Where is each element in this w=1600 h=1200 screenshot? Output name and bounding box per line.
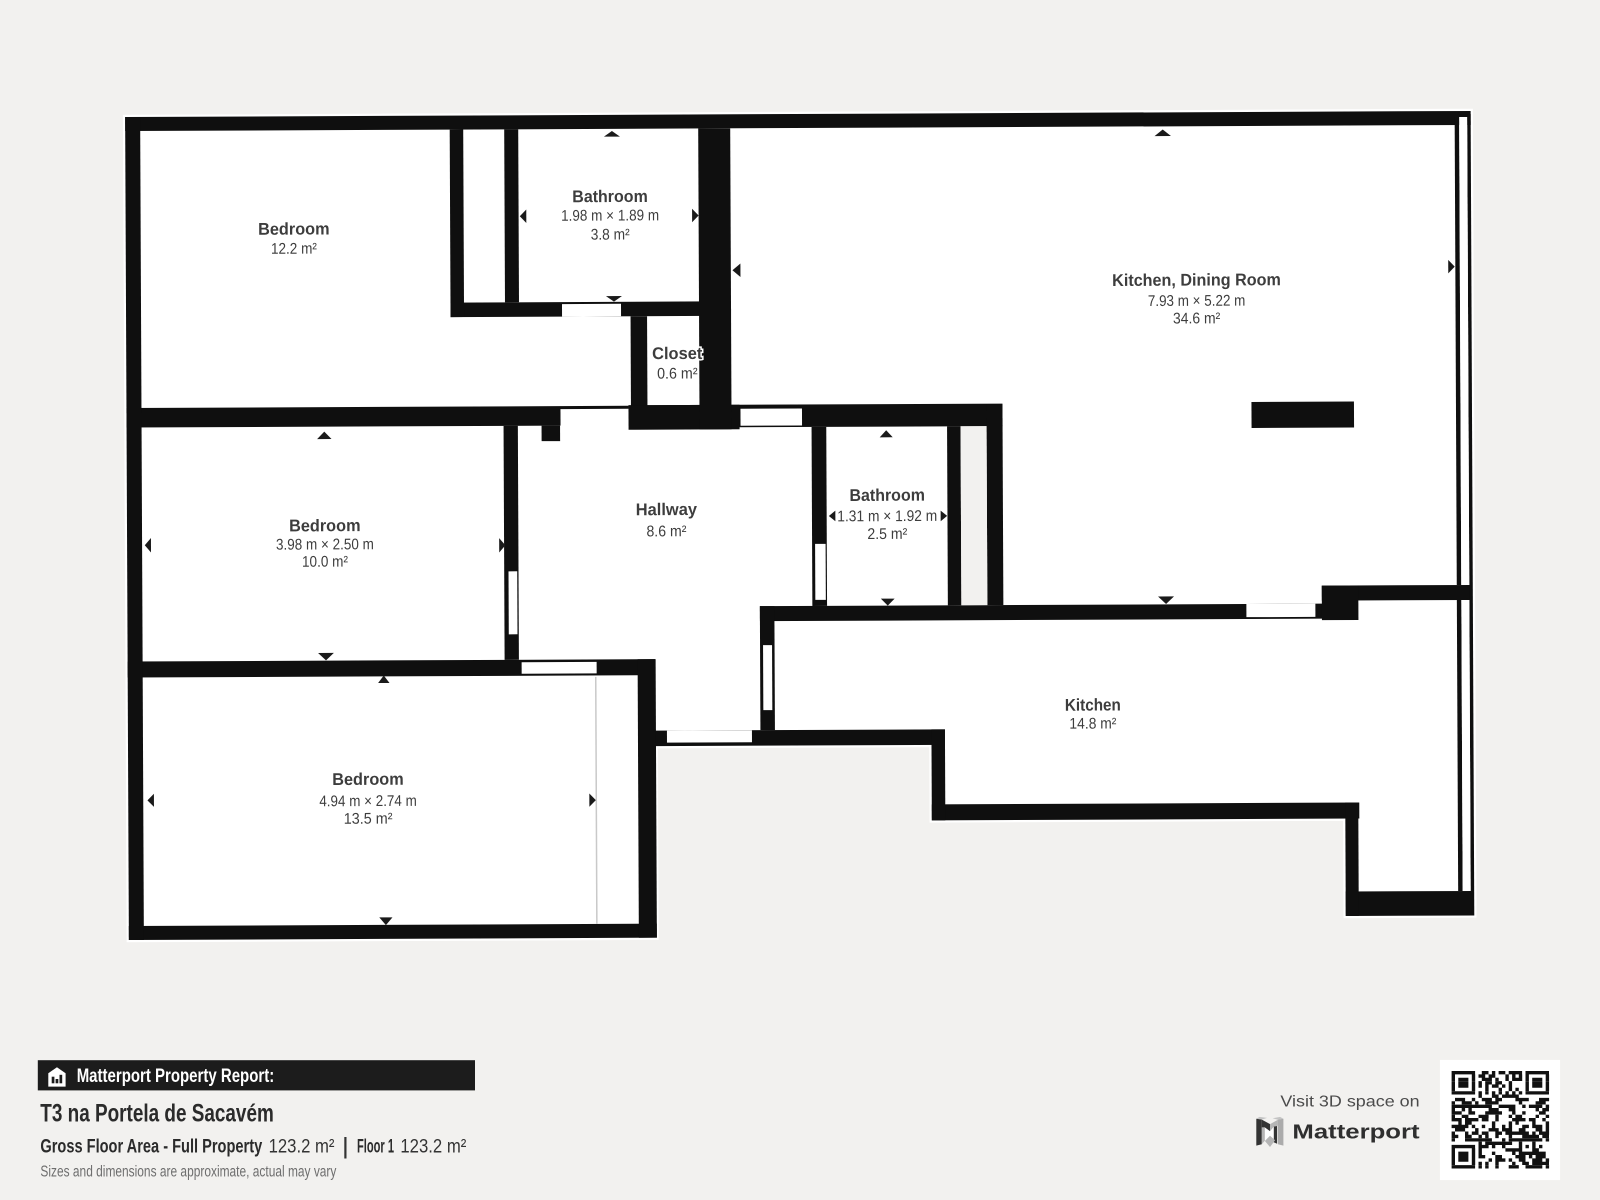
svg-text:3.98 m × 2.50 m: 3.98 m × 2.50 m (276, 536, 374, 553)
svg-text:1.31 m × 1.92 m: 1.31 m × 1.92 m (837, 508, 937, 525)
svg-text:Floor 1: Floor 1 (357, 1136, 394, 1158)
svg-text:14.8 m²: 14.8 m² (1069, 715, 1116, 732)
svg-text:Bathroom: Bathroom (849, 486, 925, 505)
svg-text:4.94 m × 2.74 m: 4.94 m × 2.74 m (319, 793, 417, 810)
svg-text:Bedroom: Bedroom (289, 516, 361, 535)
svg-text:12.2 m²: 12.2 m² (271, 241, 317, 258)
svg-text:34.6 m²: 34.6 m² (1173, 310, 1220, 327)
svg-text:8.6 m²: 8.6 m² (646, 523, 686, 540)
svg-text:2.5 m²: 2.5 m² (867, 526, 907, 543)
svg-text:Visit 3D space on: Visit 3D space on (1280, 1094, 1419, 1111)
svg-text:123.2 m²: 123.2 m² (400, 1136, 466, 1158)
svg-text:Closet: Closet (652, 344, 703, 363)
svg-text:123.2 m²: 123.2 m² (269, 1136, 335, 1158)
svg-text:T3 na Portela de Sacavém: T3 na Portela de Sacavém (40, 1100, 273, 1128)
svg-text:Bathroom: Bathroom (572, 187, 648, 206)
svg-text:Matterport: Matterport (1292, 1121, 1419, 1144)
svg-text:Gross Floor Area - Full Proper: Gross Floor Area - Full Property (40, 1136, 262, 1158)
svg-text:10.0 m²: 10.0 m² (302, 554, 348, 571)
svg-text:Sizes and dimensions are appro: Sizes and dimensions are approximate, ac… (40, 1164, 336, 1181)
svg-text:Kitchen: Kitchen (1065, 695, 1121, 714)
svg-text:Bedroom: Bedroom (258, 219, 330, 238)
svg-text:1.98 m × 1.89 m: 1.98 m × 1.89 m (561, 207, 659, 224)
svg-text:0.6 m²: 0.6 m² (657, 365, 698, 382)
svg-text:Hallway: Hallway (636, 500, 698, 519)
svg-text:7.93 m × 5.22 m: 7.93 m × 5.22 m (1148, 293, 1246, 310)
svg-text:13.5 m²: 13.5 m² (344, 811, 393, 828)
svg-text:Bedroom: Bedroom (332, 770, 404, 789)
svg-text:Kitchen, Dining Room: Kitchen, Dining Room (1112, 270, 1281, 290)
svg-text:Matterport Property Report:: Matterport Property Report: (77, 1066, 275, 1087)
svg-text:3.8 m²: 3.8 m² (591, 226, 630, 243)
